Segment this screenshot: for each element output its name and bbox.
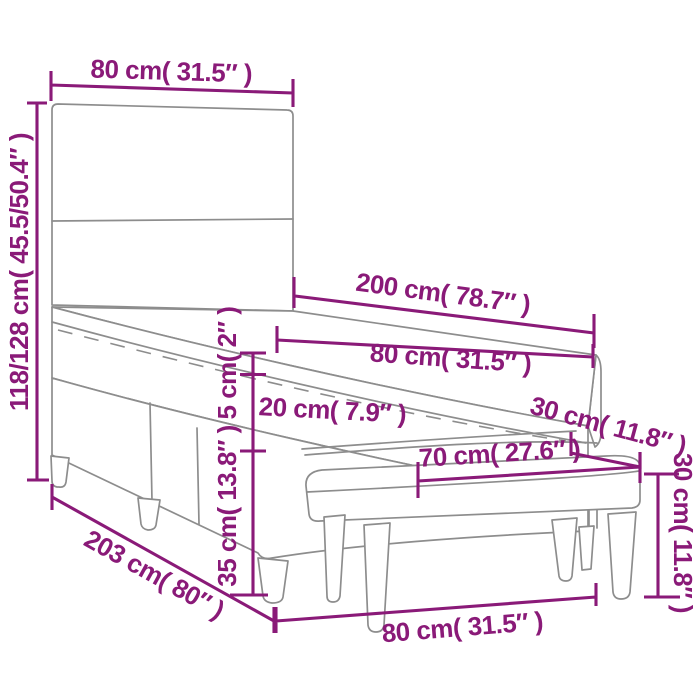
dim-label-bed-length: 200 cm( 78.7″ ) — [354, 267, 532, 320]
bench-leg-back-left — [324, 515, 345, 602]
bench-leg-back-right-inner — [579, 526, 594, 570]
bed-leg-head — [51, 456, 69, 487]
dim-bench-height: 30 cm( 11.8″ ) — [644, 453, 698, 613]
product-dimension-diagram: 80 cm( 31.5″ ) 118/128 cm( 45.5/50.4″ ) … — [0, 0, 700, 700]
bed-leg-middle — [138, 498, 160, 530]
headboard-outline — [52, 104, 293, 311]
dim-label-total-length: 203 cm( 80″ ) — [79, 523, 229, 624]
dim-label-topper-height: 5 cm( 2″ ) — [212, 307, 242, 420]
dim-label-base-height: 35 cm( 13.8″ ) — [212, 425, 242, 587]
dim-label-bench-height: 30 cm( 11.8″ ) — [668, 453, 698, 613]
dim-overall-height: 118/128 cm( 45.5/50.4″ ) — [4, 103, 49, 480]
bench-leg-back-right — [552, 518, 577, 581]
dim-bench-width: 80 cm( 31.5″ ) — [276, 583, 596, 648]
dim-label-overall-height: 118/128 cm( 45.5/50.4″ ) — [4, 133, 34, 411]
dim-headboard-width: 80 cm( 31.5″ ) — [51, 53, 293, 107]
diagram-canvas: 80 cm( 31.5″ ) 118/128 cm( 45.5/50.4″ ) … — [0, 0, 700, 700]
dim-label-headboard-width: 80 cm( 31.5″ ) — [90, 53, 252, 88]
bench-leg-front-right — [608, 512, 636, 599]
